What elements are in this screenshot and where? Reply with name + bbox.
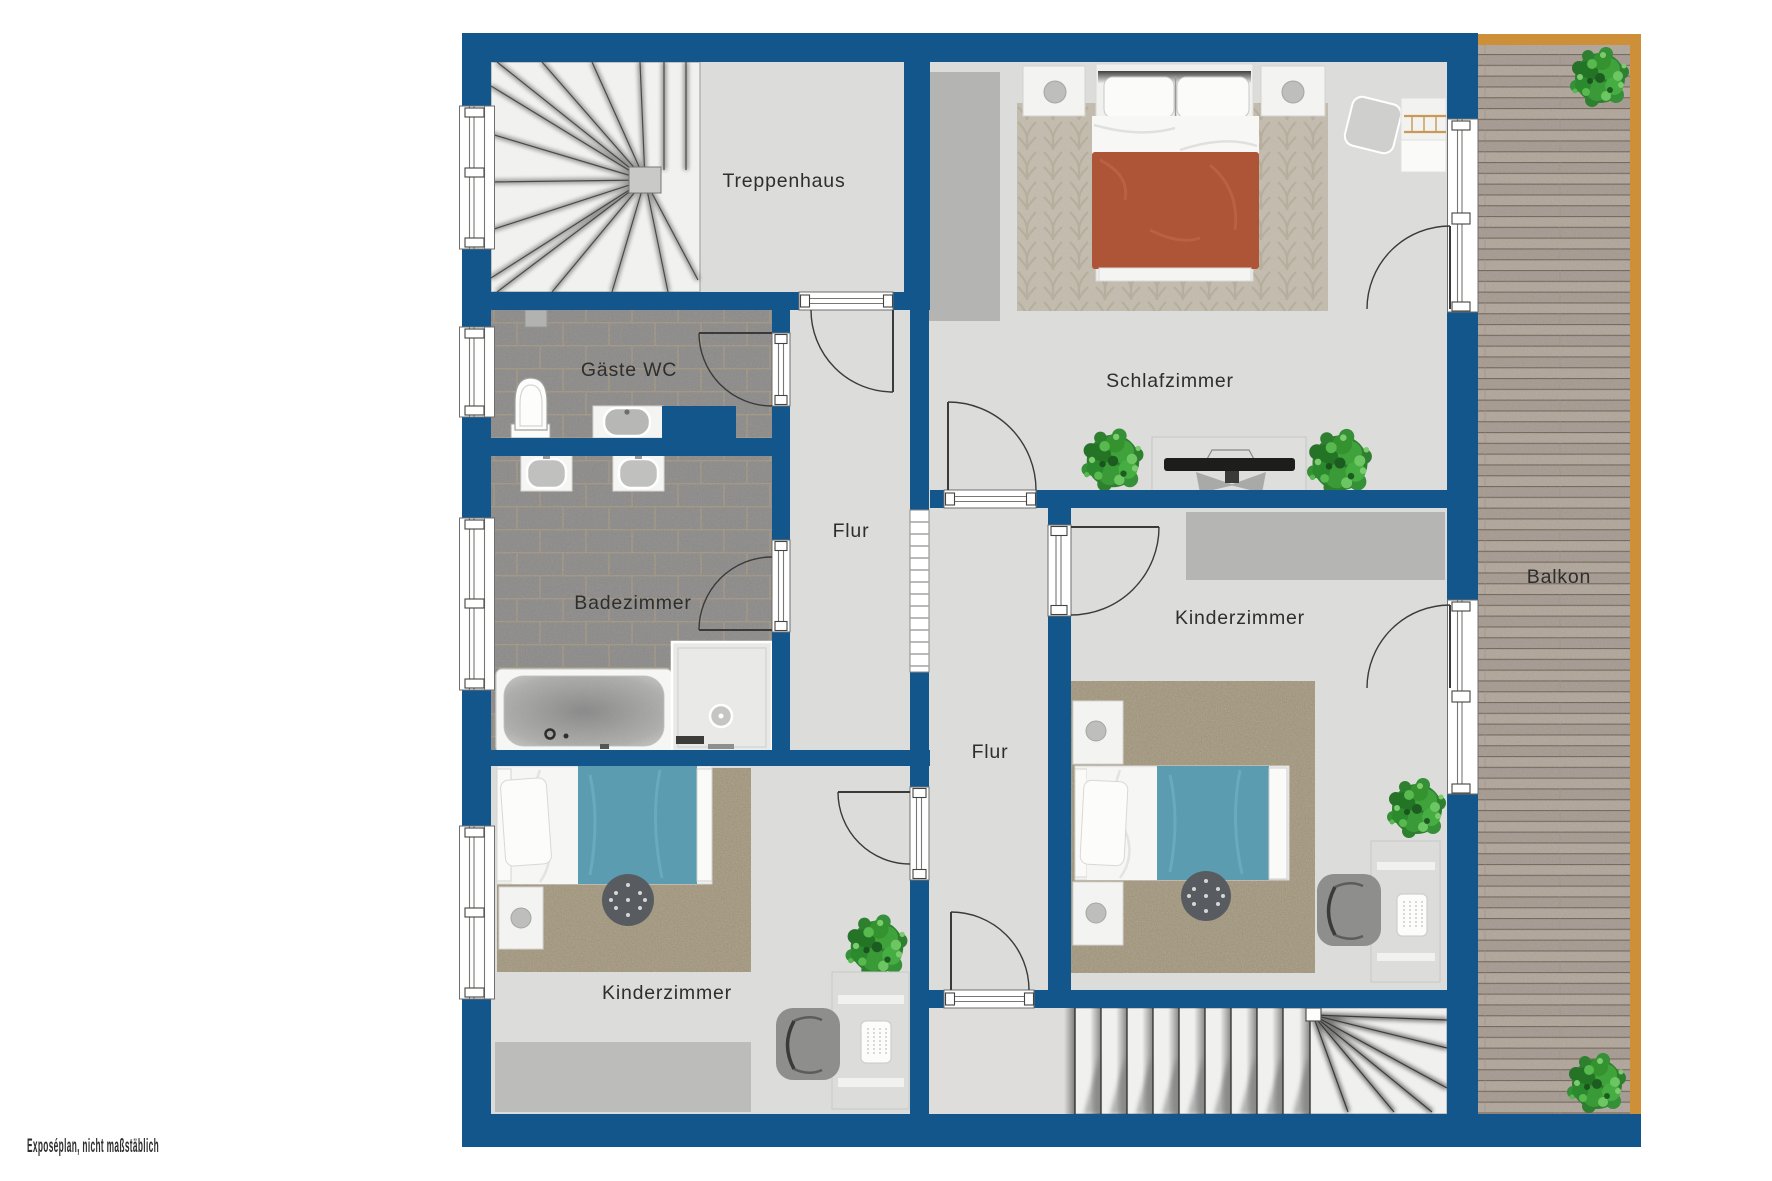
svg-text:Flur: Flur xyxy=(972,741,1009,763)
svg-text:Balkon: Balkon xyxy=(1527,566,1591,588)
svg-text:Exposéplan, nicht maßstäblich: Exposéplan, nicht maßstäblich xyxy=(27,1135,159,1157)
svg-text:Kinderzimmer: Kinderzimmer xyxy=(602,982,732,1004)
svg-text:Flur: Flur xyxy=(833,520,870,542)
svg-text:Treppenhaus: Treppenhaus xyxy=(723,170,846,192)
svg-text:Kinderzimmer: Kinderzimmer xyxy=(1175,607,1305,629)
svg-text:Schlafzimmer: Schlafzimmer xyxy=(1106,370,1234,392)
svg-text:Gäste WC: Gäste WC xyxy=(581,359,677,381)
svg-text:Badezimmer: Badezimmer xyxy=(574,592,691,614)
